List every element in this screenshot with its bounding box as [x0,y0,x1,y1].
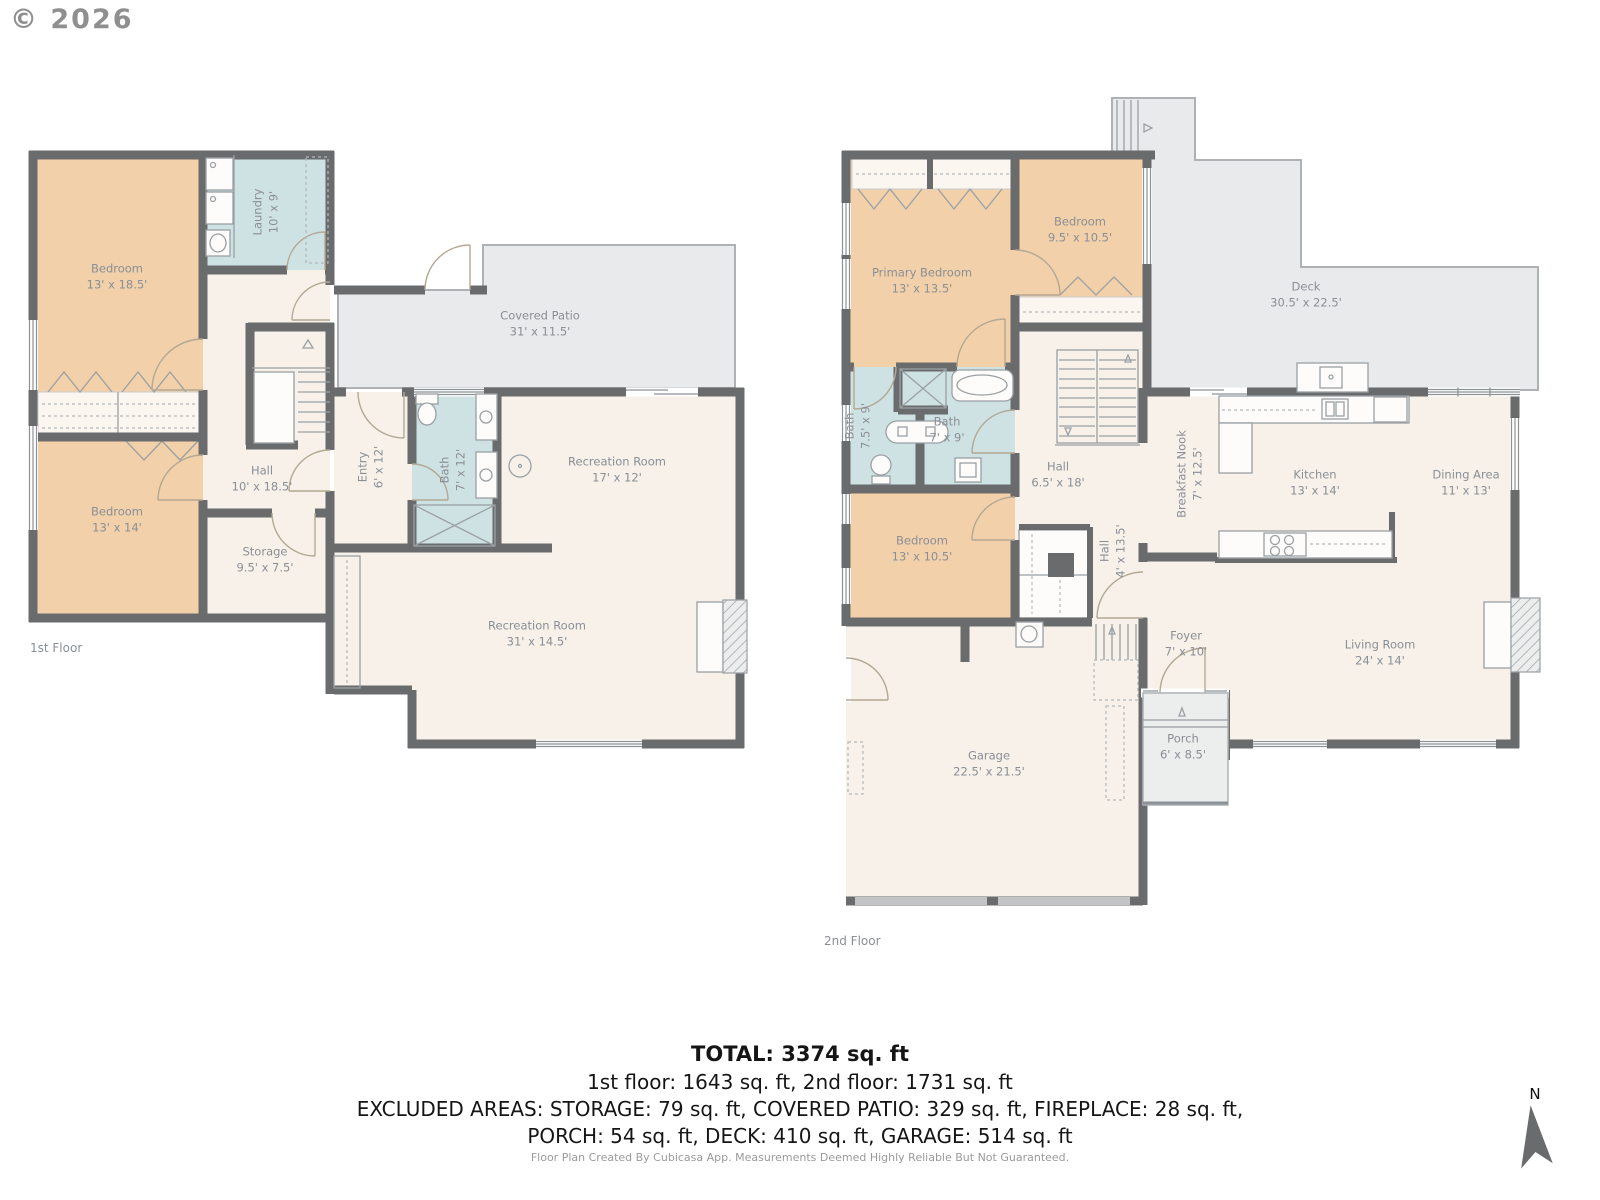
room-label-breakfast-nook: Breakfast Nook 7' x 12.5' [1174,430,1205,518]
room-label-covered-patio: Covered Patio 31' x 11.5' [500,308,580,339]
room-label-bath-2: Bath 7.5' x 9' [842,403,873,449]
room-label-hall-3: Hall 4' x 13.5' [1097,524,1128,577]
room-label-kitchen: Kitchen 13' x 14' [1290,467,1340,498]
room-label-recreation-room-2: Recreation Room 31' x 14.5' [488,618,586,649]
room-label-hall-1: Hall 10' x 18.5' [232,463,293,494]
floor1-plan [28,151,747,749]
compass: N [1505,1085,1565,1177]
compass-north-label: N [1505,1085,1565,1103]
floor2-caption: 2nd Floor [824,934,881,948]
room-label-bedroom-2: Bedroom 13' x 14' [91,504,143,535]
floor1-caption: 1st Floor [30,641,82,655]
north-arrow-icon [1508,1101,1561,1175]
floorplan-page: © 2026 [0,0,1600,1200]
disclaimer: Floor Plan Created By Cubicasa App. Meas… [0,1151,1600,1164]
floor2-fireplace [1484,598,1540,672]
room-label-recreation-room-1: Recreation Room 17' x 12' [568,454,666,485]
room-label-primary-bedroom: Primary Bedroom 13' x 13.5' [872,265,972,296]
room-label-bedroom-1: Bedroom 13' x 18.5' [87,261,148,292]
room-label-bath-1: Bath 7' x 12' [437,449,468,491]
room-label-porch: Porch 6' x 8.5' [1160,731,1206,762]
room-label-entry: Entry 6' x 12' [355,446,386,488]
room-label-bedroom-3: Bedroom 9.5' x 10.5' [1048,214,1112,245]
excluded-areas-line1: EXCLUDED AREAS: STORAGE: 79 sq. ft, COVE… [0,1097,1600,1121]
room-label-foyer: Foyer 7' x 10' [1165,628,1207,659]
room-label-laundry: Laundry 10' x 9' [250,189,281,236]
room-label-living-room: Living Room 24' x 14' [1345,637,1416,668]
excluded-areas-line2: PORCH: 54 sq. ft, DECK: 410 sq. ft, GARA… [0,1124,1600,1148]
room-label-garage: Garage 22.5' x 21.5' [953,748,1025,779]
floorplan-drawing [0,0,1600,1200]
room-label-storage: Storage 9.5' x 7.5' [236,544,293,575]
total-area: TOTAL: 3374 sq. ft [0,1042,1600,1066]
room-label-dining-area: Dining Area 11' x 13' [1432,467,1499,498]
room-label-bedroom-4: Bedroom 13' x 10.5' [892,533,953,564]
room-label-deck: Deck 30.5' x 22.5' [1270,279,1342,310]
room-label-bath-3: Bath 7' x 9' [929,414,964,445]
deck-area [1112,98,1538,390]
area-summary: TOTAL: 3374 sq. ft 1st floor: 1643 sq. f… [0,1042,1600,1164]
floor-areas: 1st floor: 1643 sq. ft, 2nd floor: 1731 … [0,1070,1600,1094]
room-label-hall-2: Hall 6.5' x 18' [1031,459,1084,490]
